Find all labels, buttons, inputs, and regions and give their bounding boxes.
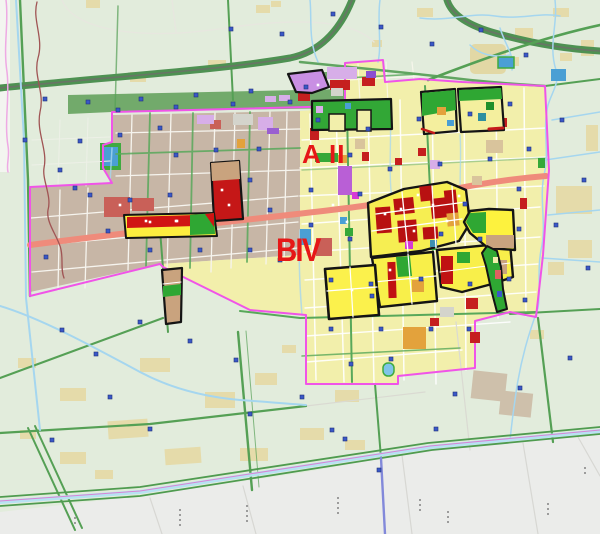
map-area xyxy=(127,215,196,228)
map-parcel xyxy=(329,114,345,131)
map-parcel xyxy=(60,388,86,401)
map-area xyxy=(163,284,181,297)
map-parcel xyxy=(470,332,480,343)
map-parcel xyxy=(300,428,324,440)
map-parcel xyxy=(437,107,446,115)
map-parcel xyxy=(331,88,343,96)
map-parcel xyxy=(107,419,148,440)
map-area xyxy=(211,161,240,181)
map-parcel xyxy=(403,327,426,349)
map-parcel xyxy=(586,125,598,151)
planning-unit xyxy=(312,99,392,130)
map-parcel xyxy=(345,103,351,109)
map-parcel xyxy=(486,235,514,248)
map-parcel xyxy=(472,176,482,185)
map-parcel xyxy=(466,298,478,309)
map-parcel xyxy=(197,115,214,124)
map-parcel xyxy=(447,120,454,126)
map-parcel xyxy=(457,252,470,263)
map-parcel xyxy=(366,71,376,78)
map-parcel xyxy=(164,447,201,465)
map-parcel xyxy=(440,307,454,317)
map-parcel xyxy=(362,152,369,161)
map-parcel xyxy=(520,198,527,209)
map-parcel xyxy=(556,186,592,214)
map-parcel xyxy=(551,69,566,81)
map-parcel xyxy=(538,158,545,168)
map-area xyxy=(459,88,502,101)
map-parcel xyxy=(478,113,486,121)
map-parcel xyxy=(530,330,544,339)
district-label-a2: A II xyxy=(302,141,345,167)
map-parcel xyxy=(495,270,501,279)
map-parcel xyxy=(417,8,433,17)
map-parcel xyxy=(444,189,458,214)
district-label-b4: BIV xyxy=(276,234,320,266)
map-parcel xyxy=(271,1,281,7)
map-parcel xyxy=(327,67,357,79)
pond xyxy=(383,363,394,376)
map-parcel xyxy=(362,77,375,86)
map-parcel xyxy=(338,166,352,195)
map-parcel xyxy=(395,158,402,165)
map-parcel xyxy=(256,5,270,13)
map-parcel xyxy=(497,291,502,297)
map-parcel xyxy=(316,106,323,113)
map-parcel xyxy=(568,240,592,258)
map-parcel xyxy=(412,280,424,292)
map-parcel xyxy=(132,198,154,211)
map-parcel xyxy=(355,139,365,149)
map-parcel xyxy=(345,440,365,450)
map-parcel xyxy=(486,140,503,153)
map-road xyxy=(489,128,503,129)
planning-unit xyxy=(288,70,329,93)
map-parcel xyxy=(60,452,86,464)
map-parcel xyxy=(418,148,426,156)
map-parcel xyxy=(255,373,277,385)
map-viewport[interactable]: A II BIV xyxy=(0,0,600,534)
map-parcel xyxy=(441,256,453,284)
map-parcel xyxy=(560,53,572,61)
map-parcel xyxy=(265,96,276,102)
map-parcel xyxy=(140,358,170,372)
map-parcel xyxy=(430,318,439,326)
map-parcel xyxy=(423,226,439,239)
map-parcel xyxy=(240,448,268,461)
map-parcel xyxy=(498,57,514,68)
map-parcel xyxy=(345,228,353,236)
map-parcel xyxy=(86,0,100,8)
map-parcel xyxy=(237,139,245,148)
map-parcel xyxy=(233,114,253,125)
map-parcel xyxy=(282,345,296,353)
map-parcel xyxy=(486,102,494,110)
map-parcel xyxy=(548,262,564,275)
map-parcel xyxy=(95,470,113,479)
map-parcel xyxy=(405,241,413,249)
map-parcel xyxy=(267,128,279,134)
map-parcel xyxy=(493,257,498,263)
